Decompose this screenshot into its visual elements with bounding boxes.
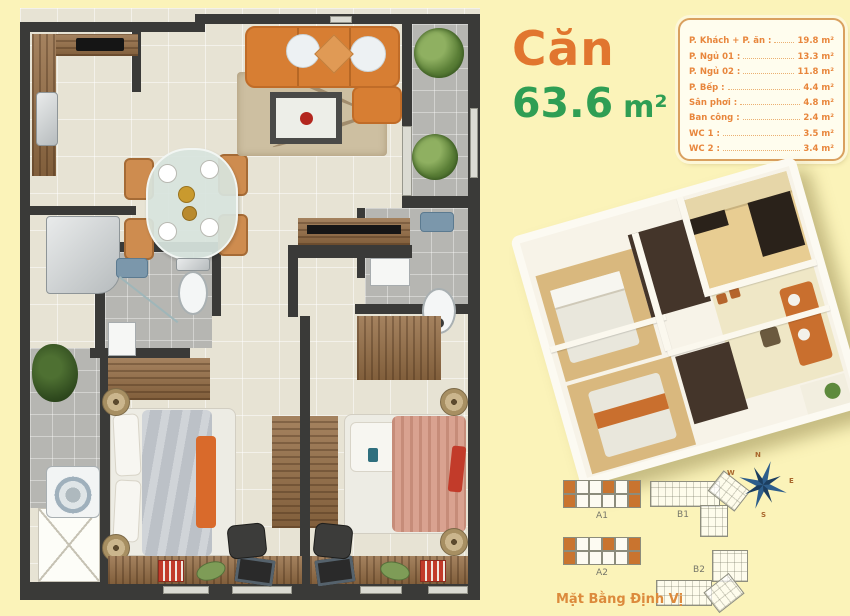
wall: [30, 206, 136, 215]
site-block-b1-wing: [700, 505, 728, 537]
legend-row: Ban công :2.4 m²: [689, 108, 834, 123]
sofa-chaise: [352, 86, 402, 124]
window: [330, 16, 352, 23]
legend-value: 13.3 m²: [797, 52, 834, 62]
iso-counter: [748, 191, 806, 257]
floorplan-3d: [510, 156, 850, 488]
legend-label: P. Bếp :: [689, 83, 725, 93]
books: [158, 560, 184, 582]
iso-dining-chair: [716, 293, 728, 305]
floorplan-brochure: Căn 63.6m² P. Khách + P. ăn :19.8 m² P. …: [0, 0, 850, 616]
wall: [20, 22, 30, 592]
window: [428, 586, 468, 594]
site-plan-caption: Mặt Bằng Định Vị: [556, 592, 683, 607]
unit-title-word: Căn: [512, 22, 668, 77]
legend-row: WC 1 :3.5 m²: [689, 123, 834, 138]
site-cell: [602, 494, 615, 508]
site-cell: [563, 551, 576, 565]
dotted-leader: [723, 135, 801, 136]
tv: [307, 225, 401, 234]
legend-row: P. Ngủ 02 :11.8 m²: [689, 62, 834, 77]
bedside-lamp: [102, 388, 130, 416]
site-cell: [628, 494, 641, 508]
site-cell: [628, 537, 641, 551]
legend-row: WC 2 :3.4 m²: [689, 139, 834, 154]
wall: [212, 252, 221, 316]
legend-label: Ban công :: [689, 113, 740, 123]
window: [360, 586, 402, 594]
legend-label: P. Ngủ 02 :: [689, 67, 740, 77]
unit-title-unit: m²: [623, 90, 667, 125]
dotted-leader: [743, 58, 794, 59]
site-cell: [589, 537, 602, 551]
site-block-a2: [563, 537, 641, 565]
wardrobe: [272, 416, 300, 528]
legend-label: P. Ngủ 01 :: [689, 52, 740, 62]
bathroom-sink: [108, 322, 136, 356]
wall: [300, 316, 310, 582]
legend-label: WC 2 :: [689, 144, 720, 154]
legend-value: 2.4 m²: [803, 113, 834, 123]
balcony-glass-door: [402, 126, 412, 196]
bedside-lamp: [440, 388, 468, 416]
window: [232, 586, 292, 594]
toilet-tank: [176, 258, 210, 271]
site-cell: [602, 551, 615, 565]
dotted-leader: [743, 73, 794, 74]
cooktop: [76, 38, 124, 51]
iso-plant-icon: [823, 381, 843, 401]
wall: [288, 245, 298, 317]
dotted-leader: [728, 89, 801, 90]
legend-value: 3.4 m²: [803, 144, 834, 154]
wall: [468, 14, 480, 592]
phone: [368, 448, 378, 462]
dotted-leader: [740, 104, 800, 105]
site-cell: [615, 537, 628, 551]
site-cell: [563, 480, 576, 494]
legend-row: Sân phơi :4.8 m²: [689, 93, 834, 108]
site-block-b1: [650, 481, 720, 507]
legend-value: 11.8 m²: [797, 67, 834, 77]
site-cell: [576, 551, 589, 565]
legend-row: P. Khách + P. ăn :19.8 m²: [689, 31, 834, 46]
site-cell: [576, 537, 589, 551]
area-legend-box: P. Khách + P. ăn :19.8 m² P. Ngủ 01 :13.…: [678, 18, 845, 161]
laptop: [234, 555, 275, 586]
site-cell: [589, 480, 602, 494]
shaft: [38, 508, 100, 582]
fridge: [46, 216, 120, 294]
iso-sofa: [779, 280, 834, 366]
shower-fixture: [420, 212, 454, 232]
dotted-leader: [723, 150, 801, 151]
plate: [200, 160, 219, 179]
site-cell: [589, 551, 602, 565]
bedside-lamp: [440, 528, 468, 556]
site-block-a1-label: A1: [563, 511, 641, 521]
plate: [158, 222, 177, 241]
site-cell: [602, 480, 615, 494]
kitchen-sink: [36, 92, 58, 146]
plate: [200, 218, 219, 237]
shower-fixture: [116, 258, 148, 278]
wall: [288, 245, 412, 258]
dotted-leader: [774, 42, 794, 43]
site-cell: [628, 551, 641, 565]
dotted-leader: [743, 119, 801, 120]
site-block-a2-label: A2: [563, 568, 641, 578]
site-cell: [602, 537, 615, 551]
plant-icon: [32, 344, 78, 402]
wardrobe: [357, 316, 441, 380]
legend-value: 4.8 m²: [803, 98, 834, 108]
compass-e: E: [789, 477, 794, 485]
site-cell: [615, 551, 628, 565]
site-cell: [563, 537, 576, 551]
site-block-b1-label: B1: [668, 510, 698, 520]
plant-icon: [414, 28, 464, 78]
bathroom-sink: [370, 258, 410, 286]
site-cell: [576, 480, 589, 494]
sofa-pillow: [286, 34, 320, 68]
wardrobe: [310, 416, 338, 528]
legend-row: P. Bếp :4.4 m²: [689, 77, 834, 92]
site-block-b2-label: B2: [684, 565, 714, 575]
legend-value: 19.8 m²: [797, 36, 834, 46]
bed-pillow: [112, 413, 141, 476]
serving-bowl: [178, 186, 195, 203]
legend-value: 3.5 m²: [803, 129, 834, 139]
window: [470, 108, 478, 178]
compass-rose: N E S W: [737, 459, 789, 511]
plant-icon: [412, 134, 458, 180]
toilet: [178, 271, 208, 315]
legend-label: P. Khách + P. ăn :: [689, 36, 771, 46]
wall: [195, 14, 205, 32]
bed-pillow: [350, 422, 398, 472]
plate: [158, 164, 177, 183]
unit-title-area: 63.6: [512, 79, 613, 127]
compass-s: S: [761, 511, 766, 519]
books: [420, 560, 446, 582]
window: [163, 586, 209, 594]
sofa-pillow: [350, 36, 386, 72]
laptop: [314, 555, 355, 586]
dining-table: [146, 148, 238, 260]
site-cell: [563, 494, 576, 508]
wall: [20, 22, 200, 32]
site-cell: [576, 494, 589, 508]
wall: [402, 196, 480, 208]
legend-row: P. Ngủ 01 :13.3 m²: [689, 46, 834, 61]
washer-drum: [54, 476, 92, 514]
legend-value: 4.4 m²: [803, 83, 834, 93]
desk-chair: [226, 522, 267, 560]
site-cell: [615, 494, 628, 508]
coffee-table-decor: [300, 112, 313, 125]
compass-star-icon: [737, 459, 789, 511]
floorplan-2d: [20, 8, 480, 600]
serving-bowl: [182, 206, 197, 221]
wall: [402, 24, 412, 126]
desk-chair: [312, 522, 353, 560]
compass-n: N: [755, 451, 761, 459]
bed-throw-orange: [196, 436, 216, 528]
site-block-a1: [563, 480, 641, 508]
unit-title: Căn 63.6m²: [512, 22, 668, 127]
legend-label: Sân phơi :: [689, 98, 737, 108]
site-cell: [589, 494, 602, 508]
site-cell: [628, 480, 641, 494]
compass-w: W: [727, 469, 735, 477]
site-cell: [615, 480, 628, 494]
legend-label: WC 1 :: [689, 129, 720, 139]
